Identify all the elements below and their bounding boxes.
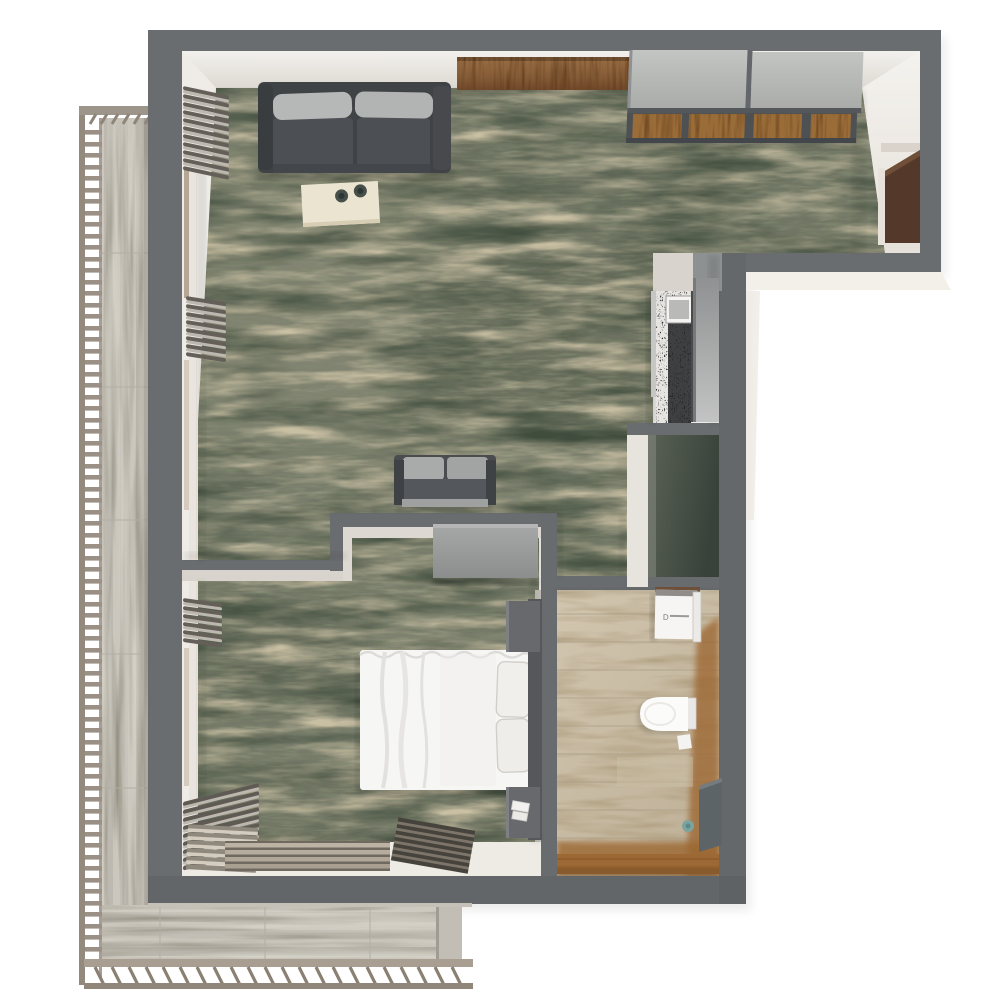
svg-text:D: D — [663, 613, 669, 622]
